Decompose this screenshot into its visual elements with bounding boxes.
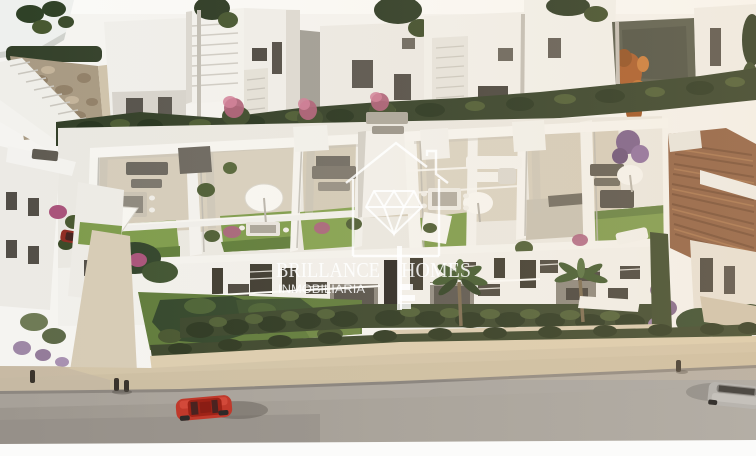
- svg-text:HOMES: HOMES: [401, 258, 471, 282]
- svg-text:INMOBILIARIA: INMOBILIARIA: [278, 282, 365, 296]
- svg-text:BRILLANCE: BRILLANCE: [276, 258, 380, 282]
